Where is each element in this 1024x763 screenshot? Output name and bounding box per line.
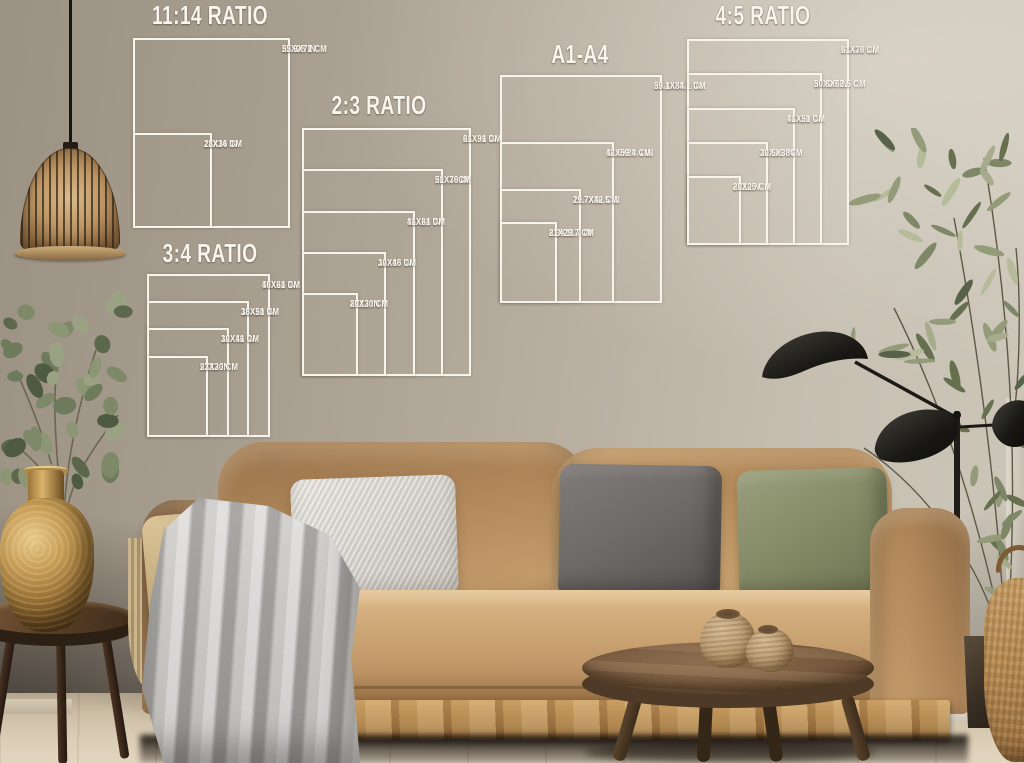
size-guide-title: 3:4 RATIO [121,239,299,267]
size-guide-title: A1-A4 [491,40,669,68]
size-rect-9x12-in: 9X12 IN23X30 CM [147,356,208,437]
size-rect-11x14-in: 11X14 IN28X36 CM [133,133,212,228]
size-guide-title: 4:5 RATIO [674,1,852,29]
size-guide-group-ratio-11-14: 22X28 IN55.9X71 CM11X14 IN28X36 CM [133,38,290,228]
size-guide-group-ratio-4-5: 24X30 IN61X76 CM20X25 IN50.8X63.5 CM16X2… [687,39,849,245]
size-guide-group-ratio-2-3: 24X36 IN61X91 CM20X30 IN51X76CM16X24 IN4… [302,128,471,376]
mockup-photo: 22X28 IN55.9X71 CM11X14 IN28X36 CM11:14 … [0,0,1024,763]
size-rect-8.3x11.7-in: 8.3X11.7 IN21X29.7 CM [500,222,557,303]
size-guide-group-ratio-3-4: 18X24 IN46X61 CM15X20 IN38X51 CM12X16 IN… [147,274,270,437]
size-guide-title: 11:14 RATIO [121,1,299,29]
size-rect-8x10in: 8X10IN20X25 CM [687,176,741,245]
size-rect-8x12-in: 8X12 IN20X30 CM [302,293,358,376]
size-guide-title: 2:3 RATIO [290,91,468,119]
size-guide-group-a1-a4: 23.4X33.1 IN59.1X84.1 CM16.5X23.4 IN42X5… [500,75,662,303]
size-guide-overlay: 22X28 IN55.9X71 CM11X14 IN28X36 CM11:14 … [0,0,1024,763]
